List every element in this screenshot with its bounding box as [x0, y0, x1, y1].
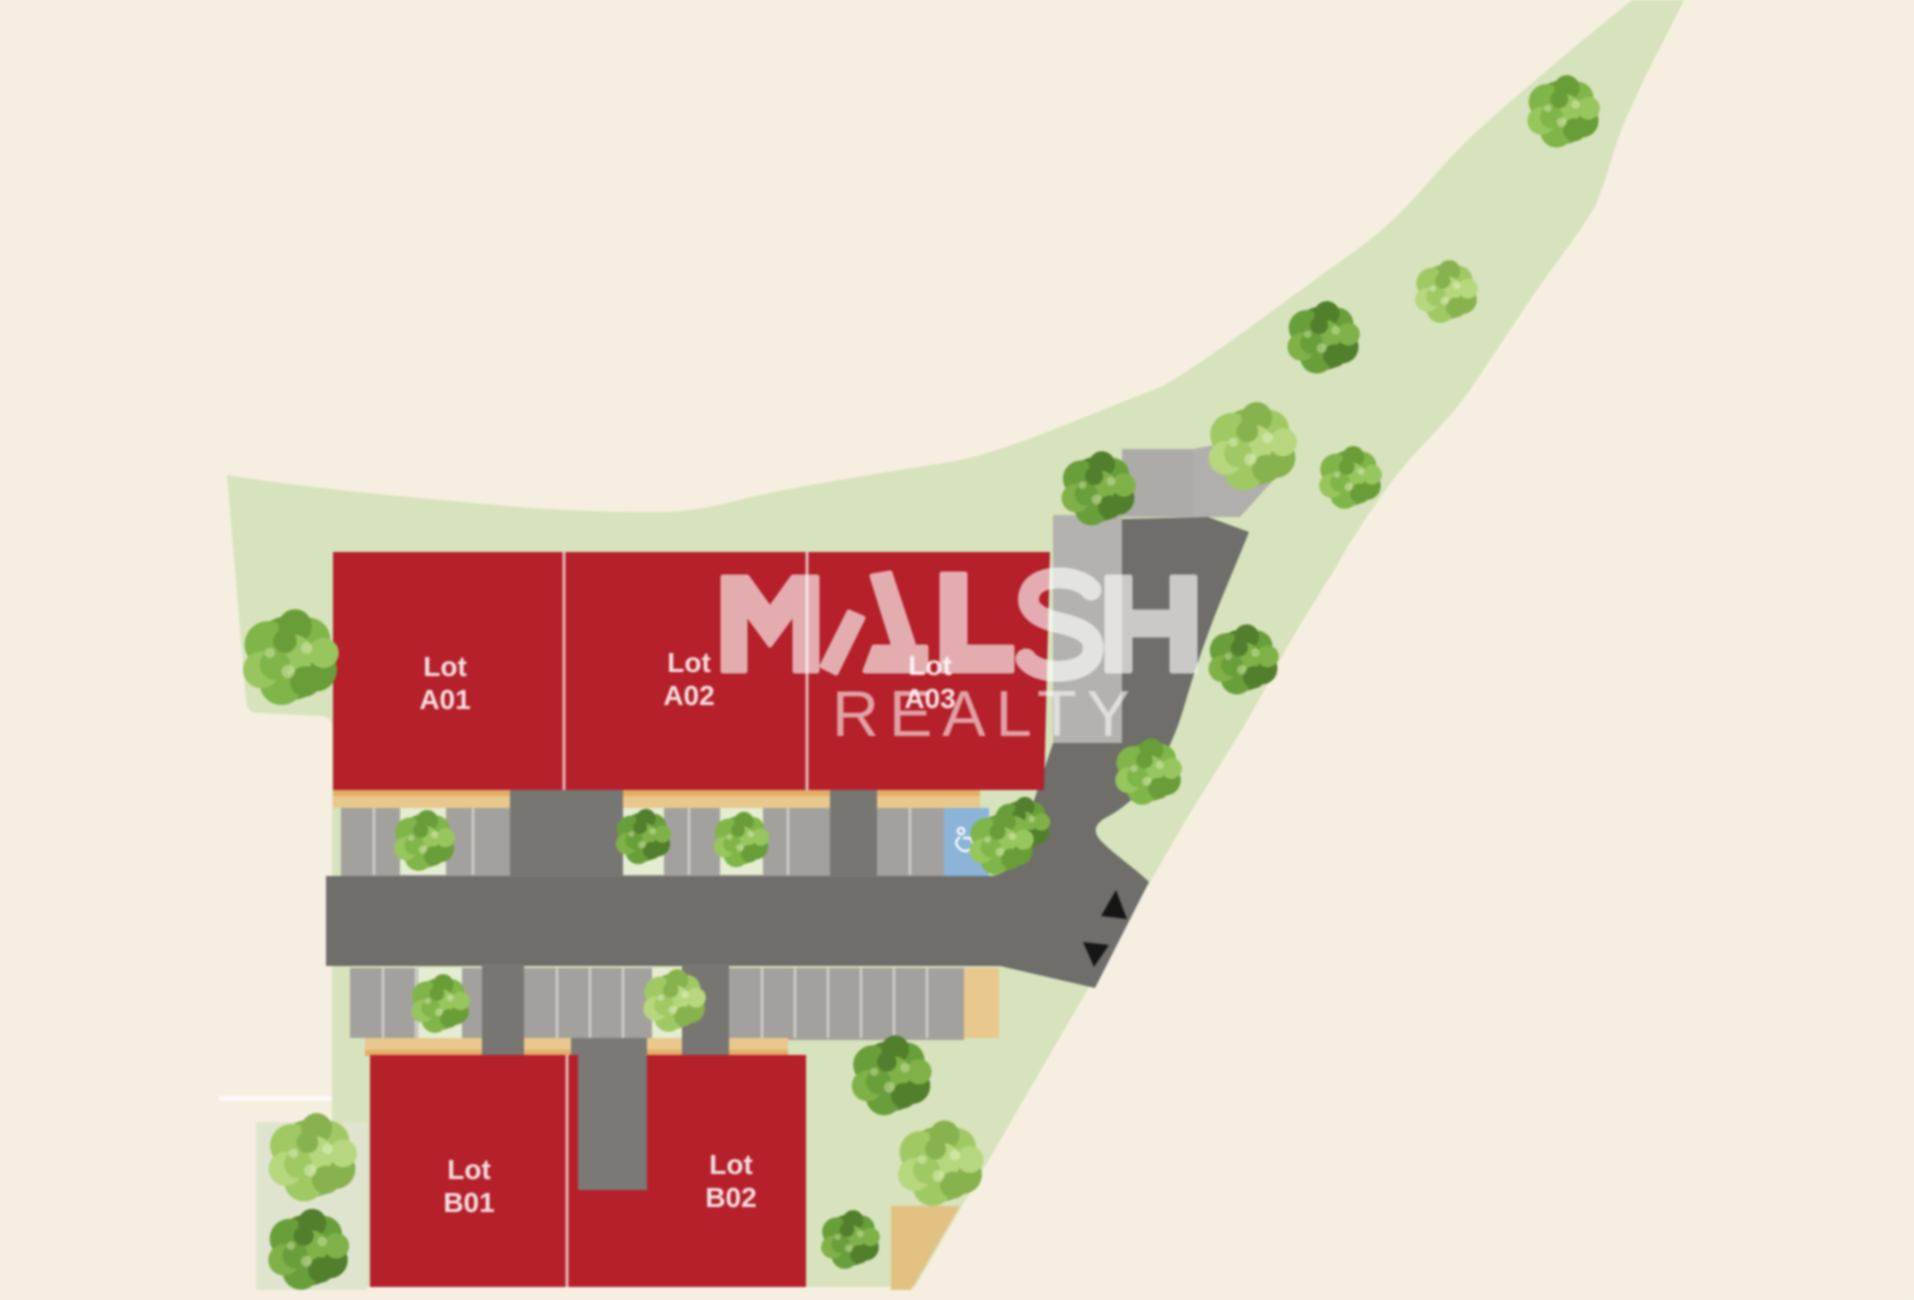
svg-text:A03: A03 [904, 683, 955, 714]
svg-text:A01: A01 [419, 684, 470, 715]
svg-text:B02: B02 [705, 1182, 756, 1213]
svg-text:B01: B01 [443, 1187, 494, 1218]
svg-text:REALTY: REALTY [832, 677, 1140, 750]
svg-text:Lot: Lot [709, 1149, 753, 1180]
svg-text:Lot: Lot [447, 1154, 491, 1185]
svg-text:A02: A02 [663, 680, 714, 711]
svg-text:Lot: Lot [908, 650, 952, 681]
svg-text:Lot: Lot [423, 651, 467, 682]
svg-text:Lot: Lot [667, 647, 711, 678]
